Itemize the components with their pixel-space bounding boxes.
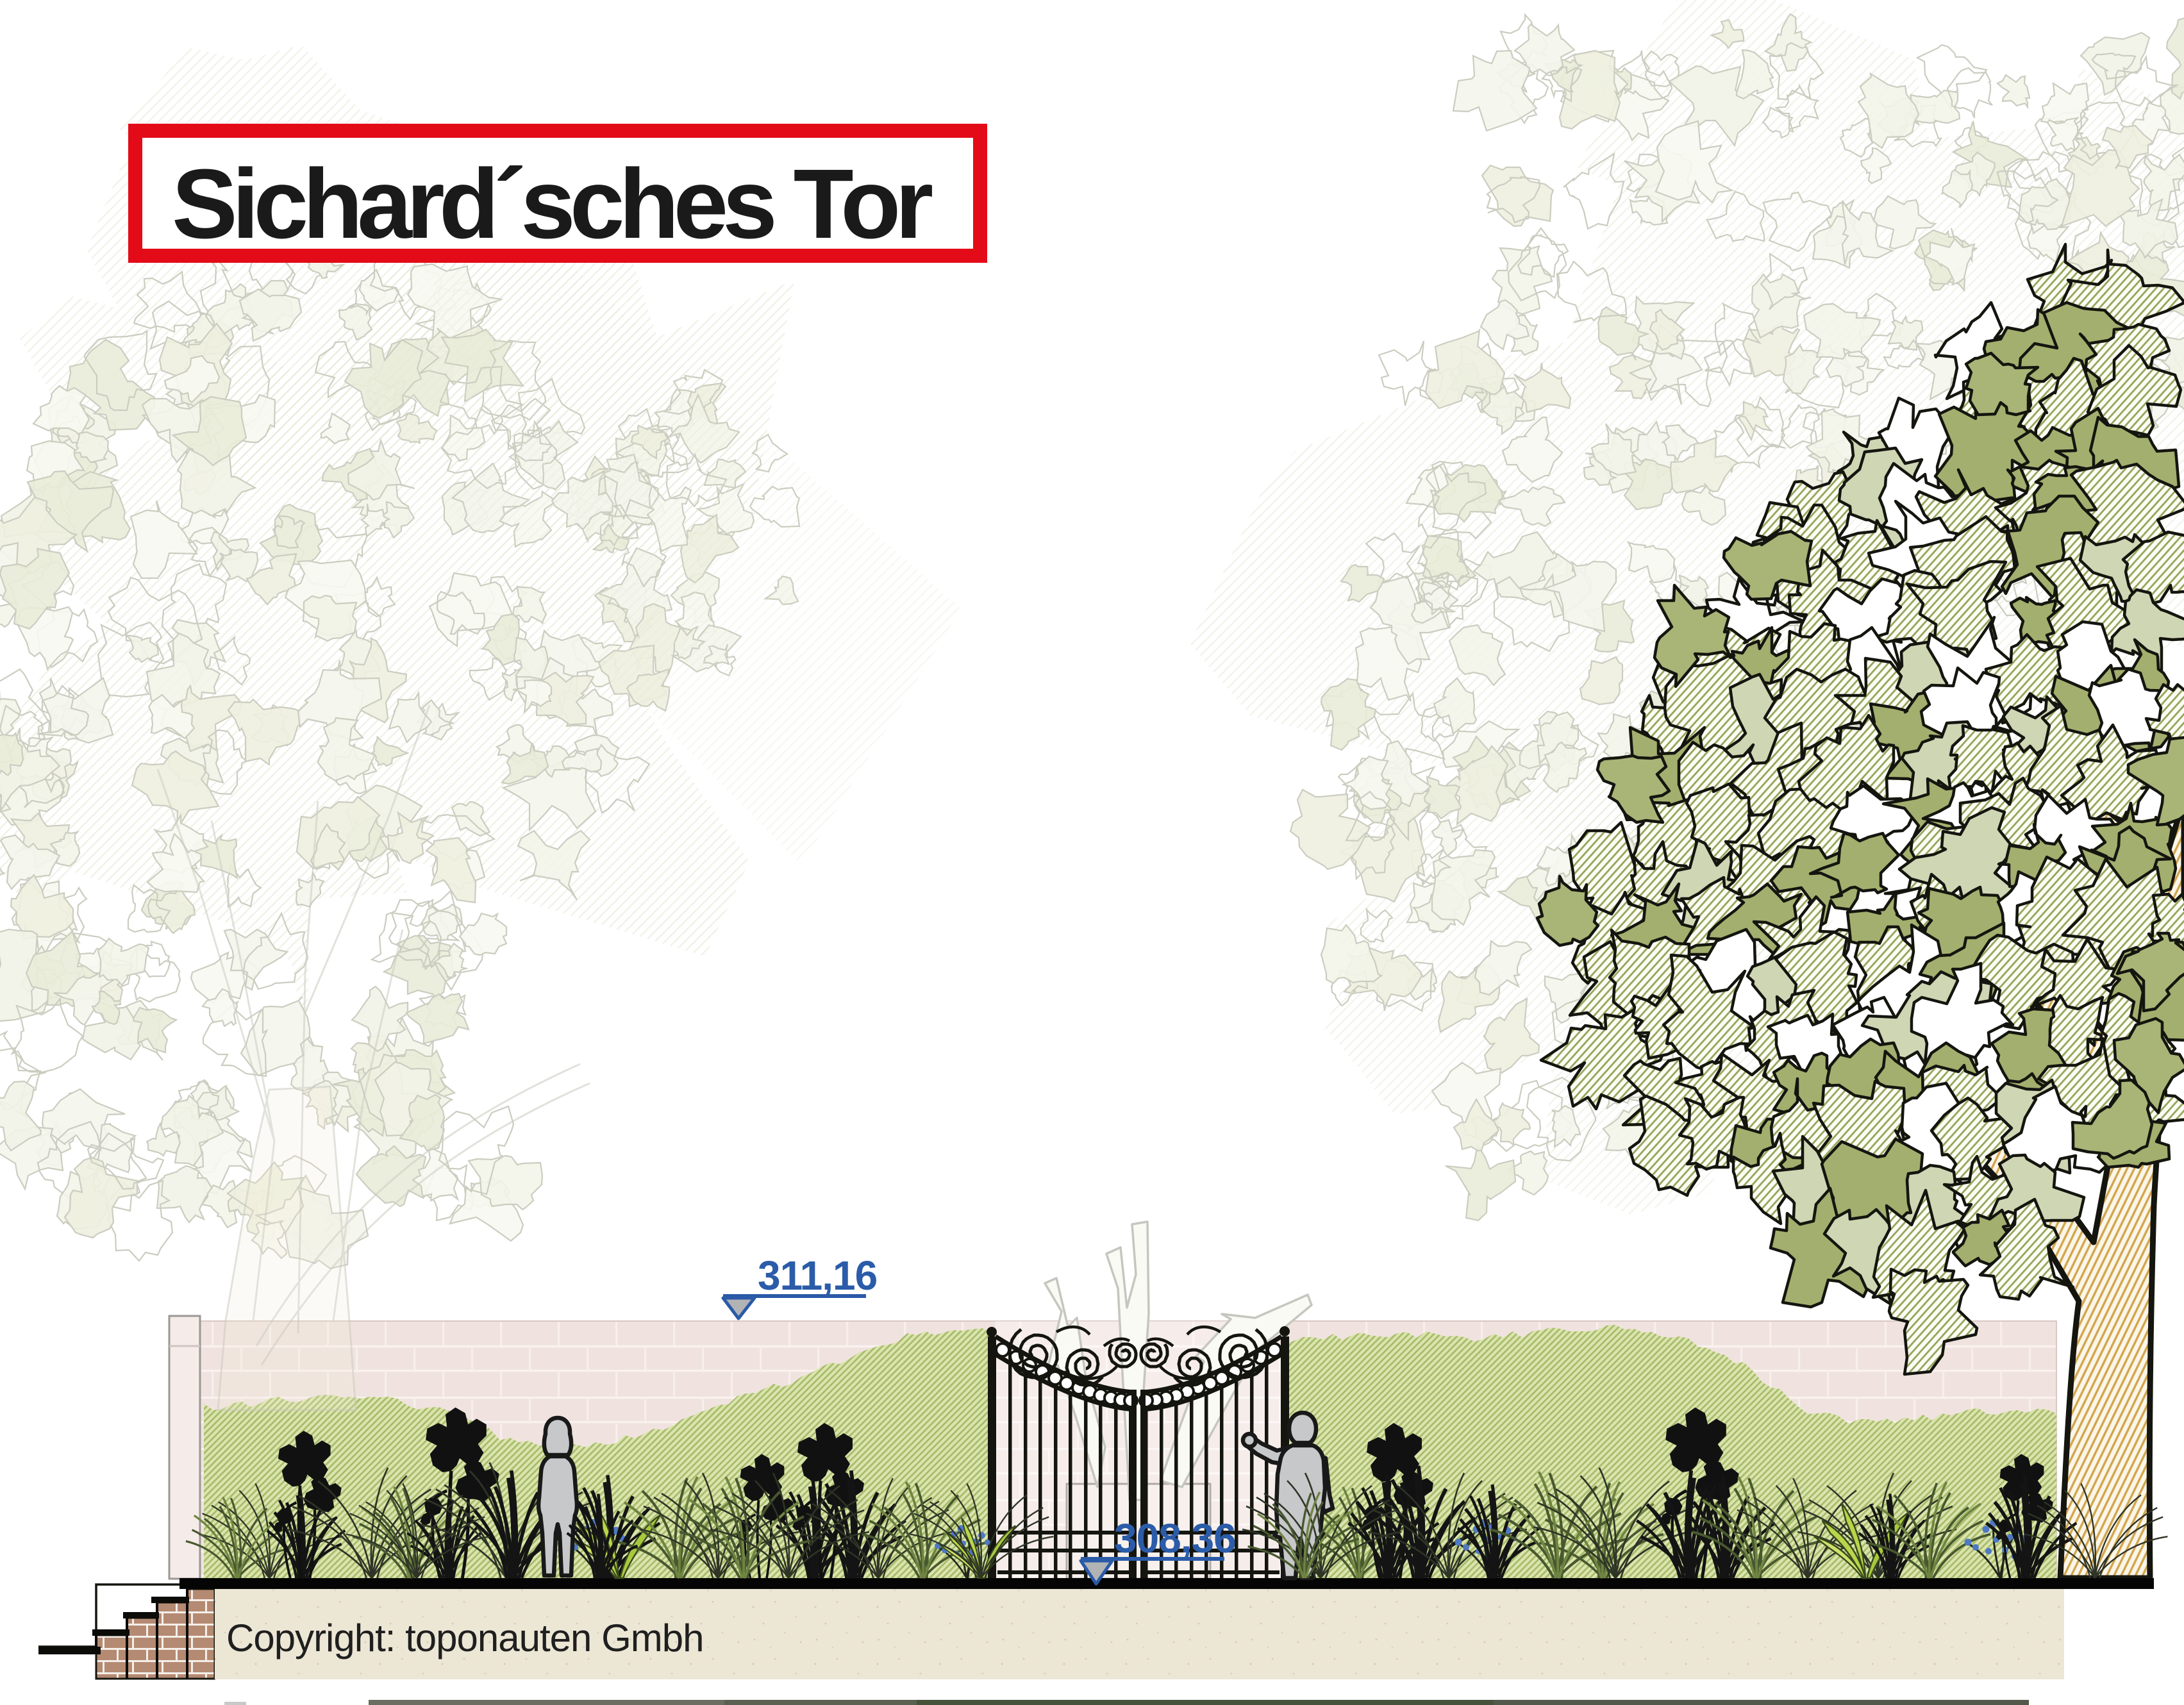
- svg-text:Copyright: toponauten Gmbh: Copyright: toponauten Gmbh: [226, 1617, 703, 1659]
- svg-text:308,36: 308,36: [1114, 1515, 1236, 1561]
- svg-text:Sichard´sches Tor: Sichard´sches Tor: [172, 149, 932, 259]
- svg-text:311,16: 311,16: [758, 1252, 877, 1299]
